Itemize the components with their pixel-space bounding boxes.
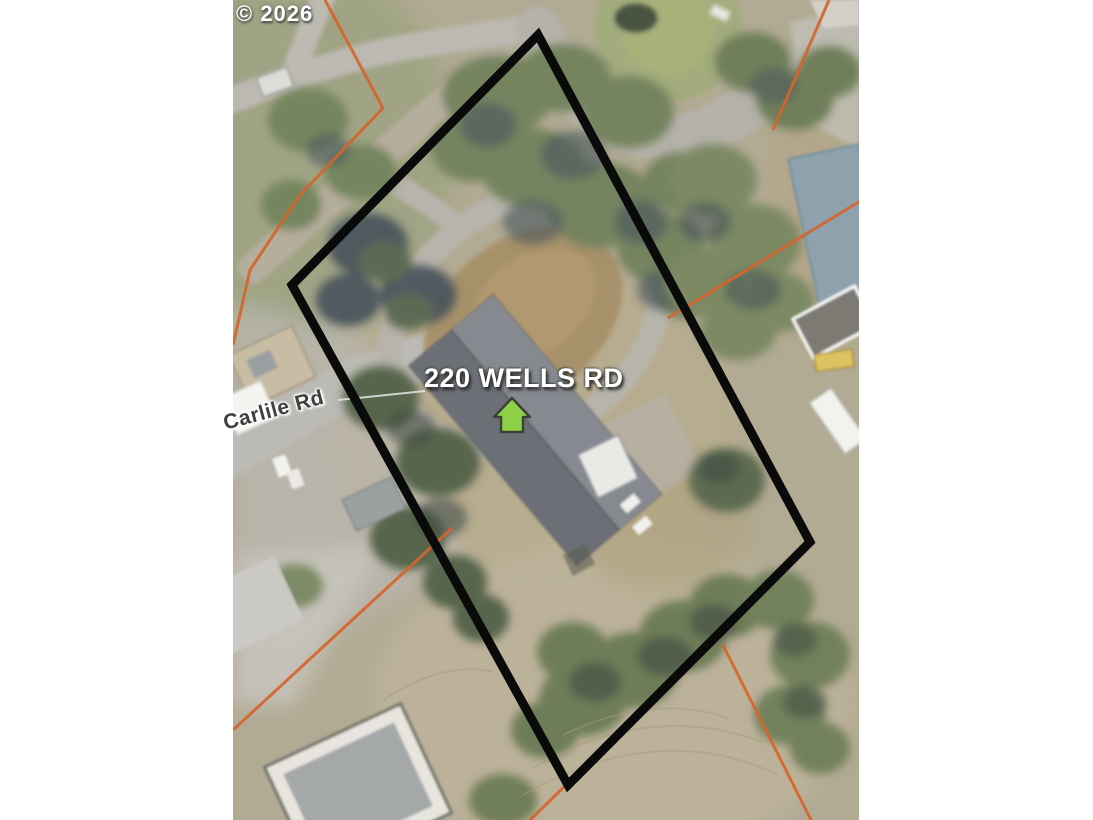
property-address-label: 220 WELLS RD [424,363,624,394]
house-marker-shape [494,398,530,432]
aerial-scene [233,0,859,820]
map-screenshot: © 2026 220 WELLS RD Carlile Rd [0,0,1093,820]
aerial-photo [233,0,859,820]
house-marker-icon [492,396,532,434]
copyright-watermark: © 2026 [236,1,313,27]
